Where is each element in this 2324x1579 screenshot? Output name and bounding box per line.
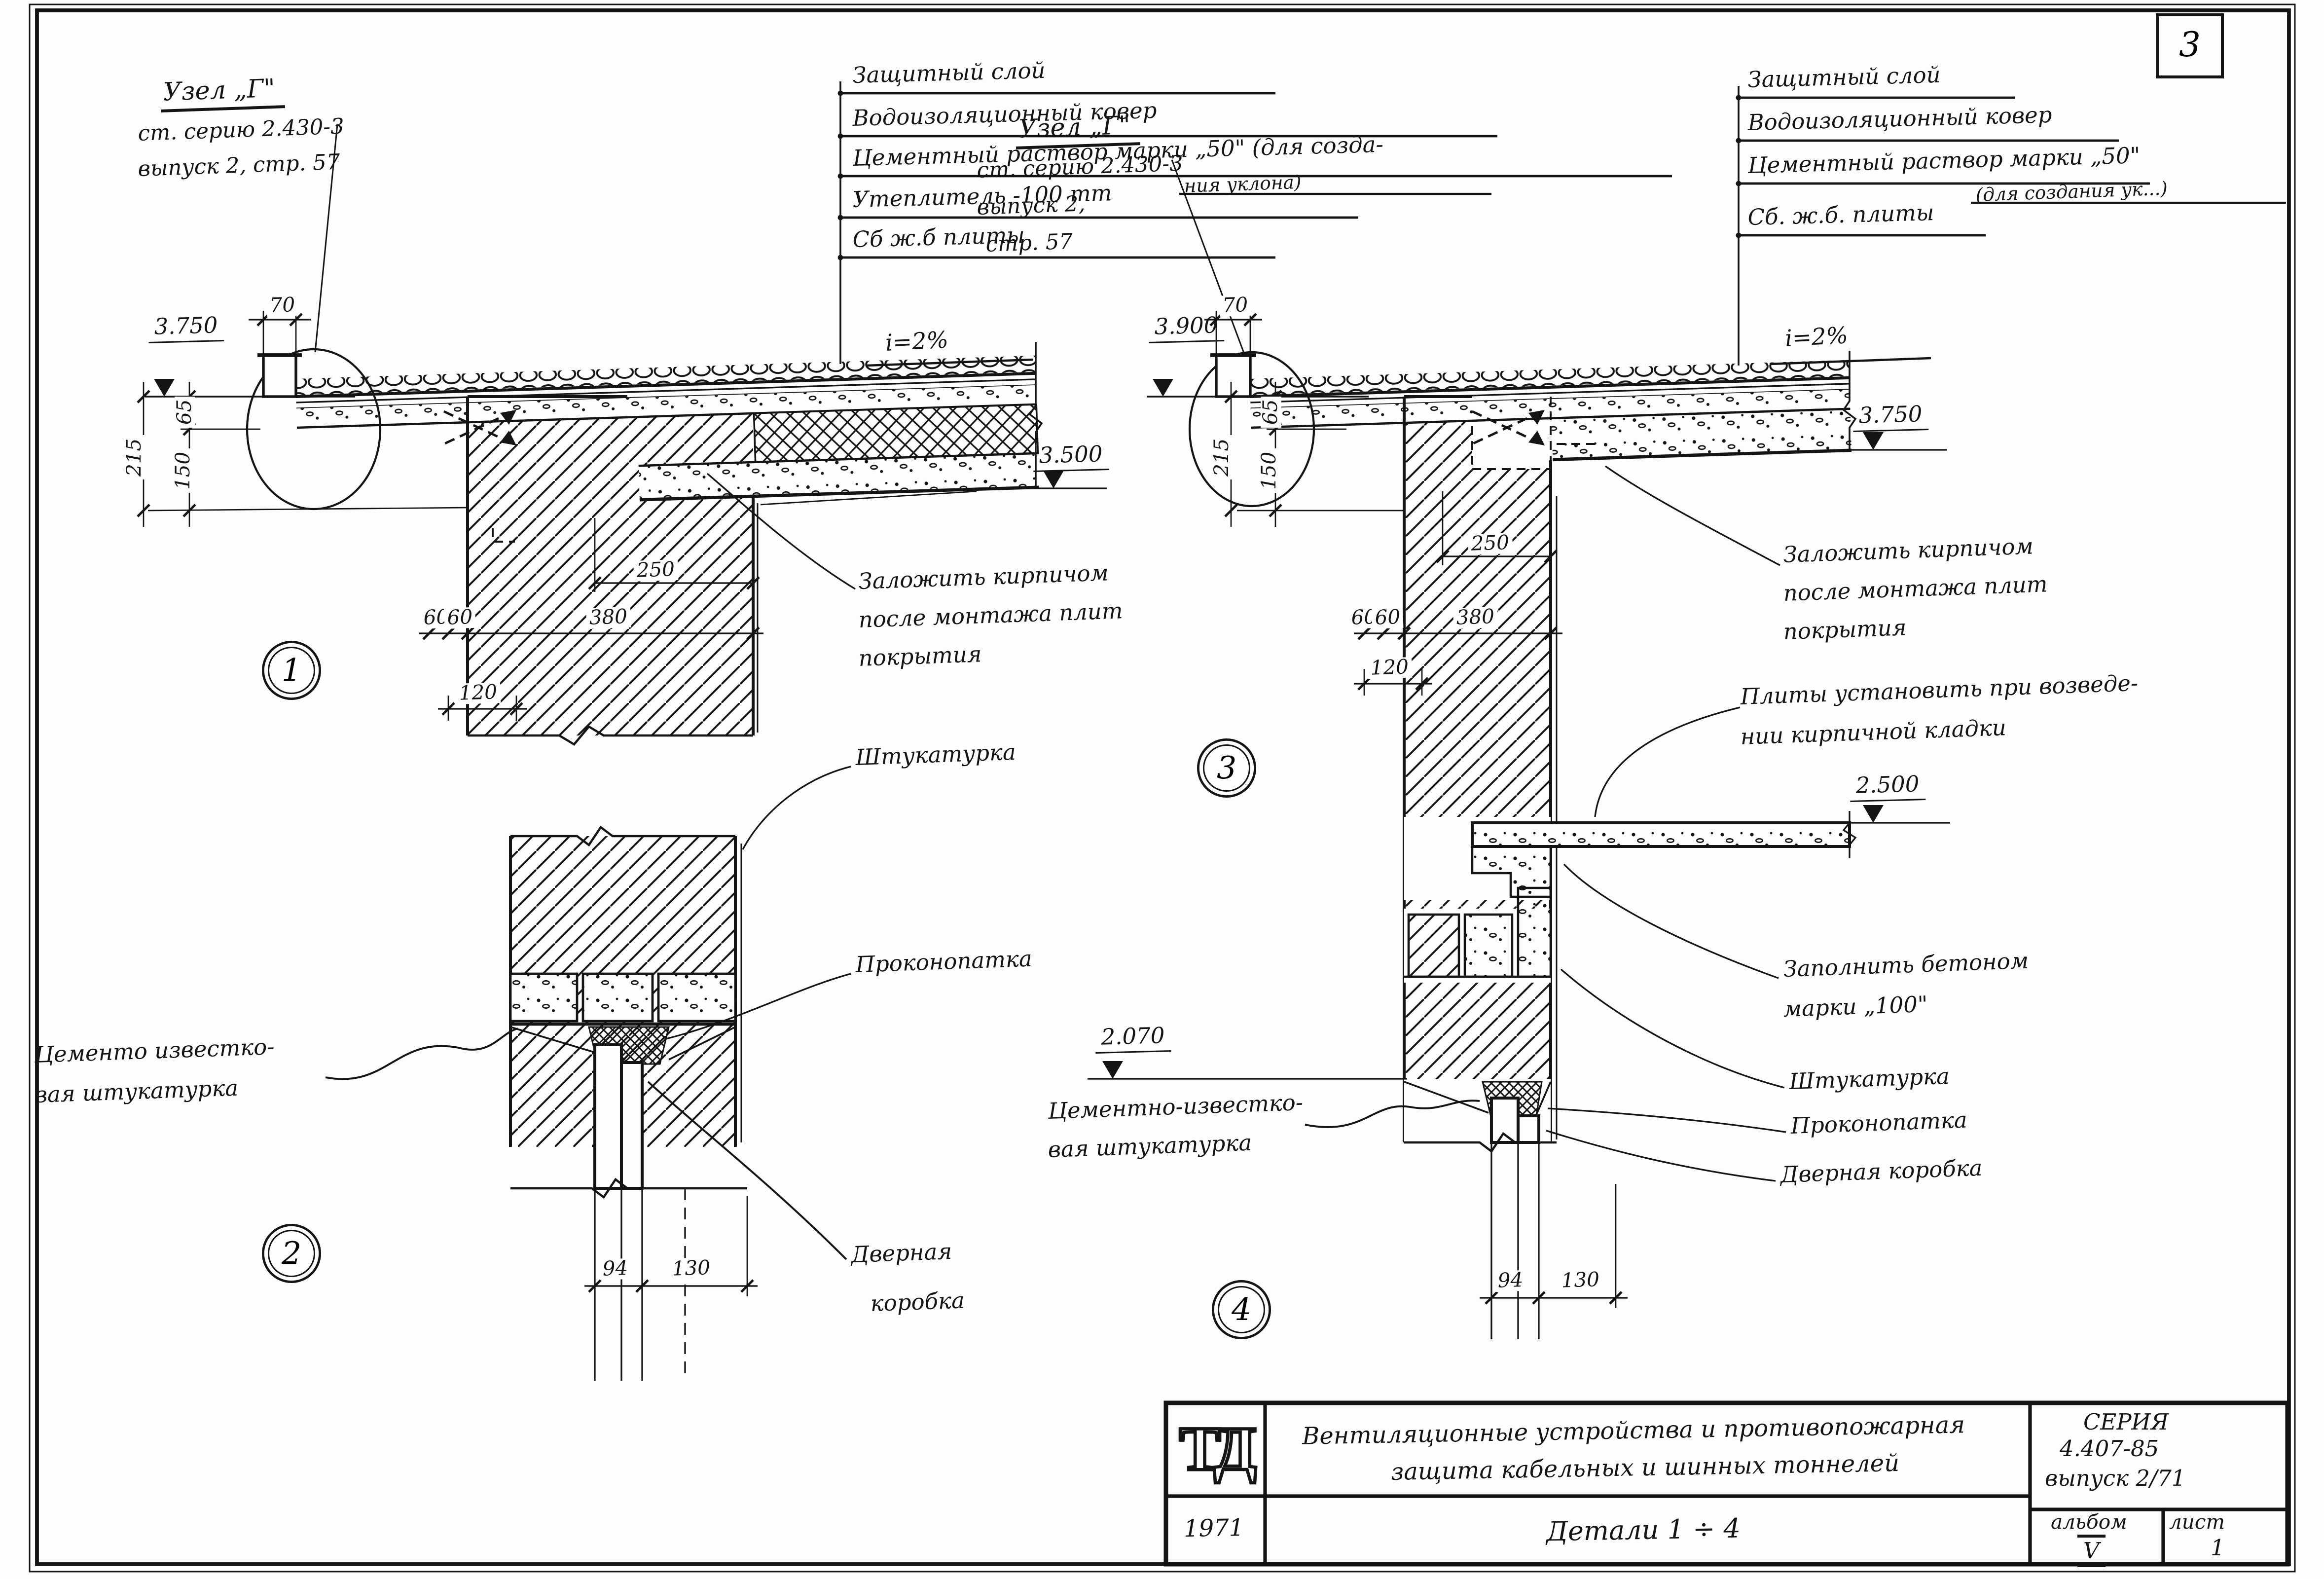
node-ref-page-3: стр. 57	[985, 232, 1073, 258]
node-ref-issue-3: выпуск 2,	[977, 194, 1086, 220]
label-fill-concrete-l2: марки „100"	[1783, 994, 1928, 1022]
elevation-2500: 2.500	[1850, 773, 1925, 802]
series-value: 4.407-85	[2060, 1435, 2159, 1462]
sheet-value: 1	[2211, 1535, 2225, 1561]
note-brick-line3: покрытия	[858, 644, 982, 671]
detail-circle-1: 1	[268, 647, 315, 694]
sheet-number: 3	[2179, 27, 2201, 65]
dim-94-d2: 94	[599, 1258, 631, 1281]
dim-380-d3: 380	[1453, 607, 1498, 629]
callout-protective-layer-r: Защитный слой	[1747, 65, 1941, 93]
org-logo: ТД	[1179, 1415, 1254, 1486]
dim-250: 250	[633, 559, 678, 582]
drawing-sheet: 3 Защитный слой Водоизоляционный ковер Ц…	[0, 0, 2324, 1579]
detail-circle-4: 4	[1218, 1286, 1265, 1333]
elevation-3750-right: 3.750	[1852, 404, 1928, 432]
dim-70: 70	[266, 295, 298, 317]
sheet-label: лист	[2169, 1511, 2225, 1535]
detail-number-1: 1	[282, 653, 301, 688]
slope-label: i=2%	[885, 328, 949, 355]
elevation-3900: 3.900	[1148, 315, 1224, 343]
issue-value: выпуск 2/71	[2045, 1465, 2185, 1492]
dim-130-d4: 130	[1558, 1270, 1603, 1292]
album-value: V	[2077, 1535, 2106, 1567]
detail-number-4: 4	[1232, 1292, 1251, 1327]
sheet-number-box: 3	[2156, 13, 2224, 78]
detail-circle-2: 2	[268, 1230, 315, 1277]
dim-60b: 60	[444, 607, 476, 629]
elevation-3500: 3.500	[1033, 443, 1109, 472]
dim-94-d4: 94	[1494, 1270, 1526, 1292]
elevation-2070: 2.070	[1095, 1025, 1171, 1053]
dim-250-d3: 250	[1468, 533, 1513, 555]
elevation-3750: 3.750	[148, 315, 224, 343]
detail-number-2: 2	[282, 1236, 301, 1271]
slope-label-3: i=2%	[1784, 324, 1849, 351]
dim-70-d3: 70	[1219, 295, 1251, 317]
dim-215: 215	[124, 436, 145, 479]
dim-215-d3: 215	[1212, 436, 1233, 479]
title-block-year: 1971	[1184, 1513, 1244, 1542]
dim-120-d3: 120	[1367, 657, 1412, 680]
sheet-canvas: 3 Защитный слой Водоизоляционный ковер Ц…	[0, 0, 2324, 1579]
series-label: СЕРИЯ	[2083, 1409, 2169, 1435]
node-ref-title: Узел „Г"	[160, 77, 285, 112]
drawing-linework	[0, 0, 2324, 1579]
detail-circle-3: 3	[1203, 744, 1250, 792]
dim-150: 150	[173, 449, 194, 493]
dim-130-d2: 130	[669, 1258, 714, 1281]
dim-380: 380	[586, 607, 631, 629]
detail-number-3: 3	[1217, 750, 1236, 786]
title-block-subtitle: Детали 1 ÷ 4	[1546, 1514, 1741, 1548]
note-brick3-line3: покрытия	[1783, 617, 1907, 645]
dim-60b-d3: 60	[1372, 607, 1404, 629]
album-label: альбом	[2051, 1511, 2127, 1535]
label-door-frame-l1: Дверная	[851, 1241, 952, 1268]
callout-rc-slabs-r: Сб. ж.б. плиты	[1747, 202, 1934, 230]
node-ref-title-3: Узел „Г"	[1015, 114, 1140, 149]
dim-120: 120	[456, 682, 501, 705]
callout-slope-note: ния уклона)	[1184, 172, 1302, 196]
dim-65: 65	[175, 396, 196, 428]
label-door-frame-l2: коробка	[870, 1290, 965, 1317]
dim-150-d3: 150	[1259, 449, 1280, 493]
dim-65-d3: 65	[1261, 396, 1282, 428]
callout-protective-layer: Защитный слой	[852, 60, 1046, 88]
